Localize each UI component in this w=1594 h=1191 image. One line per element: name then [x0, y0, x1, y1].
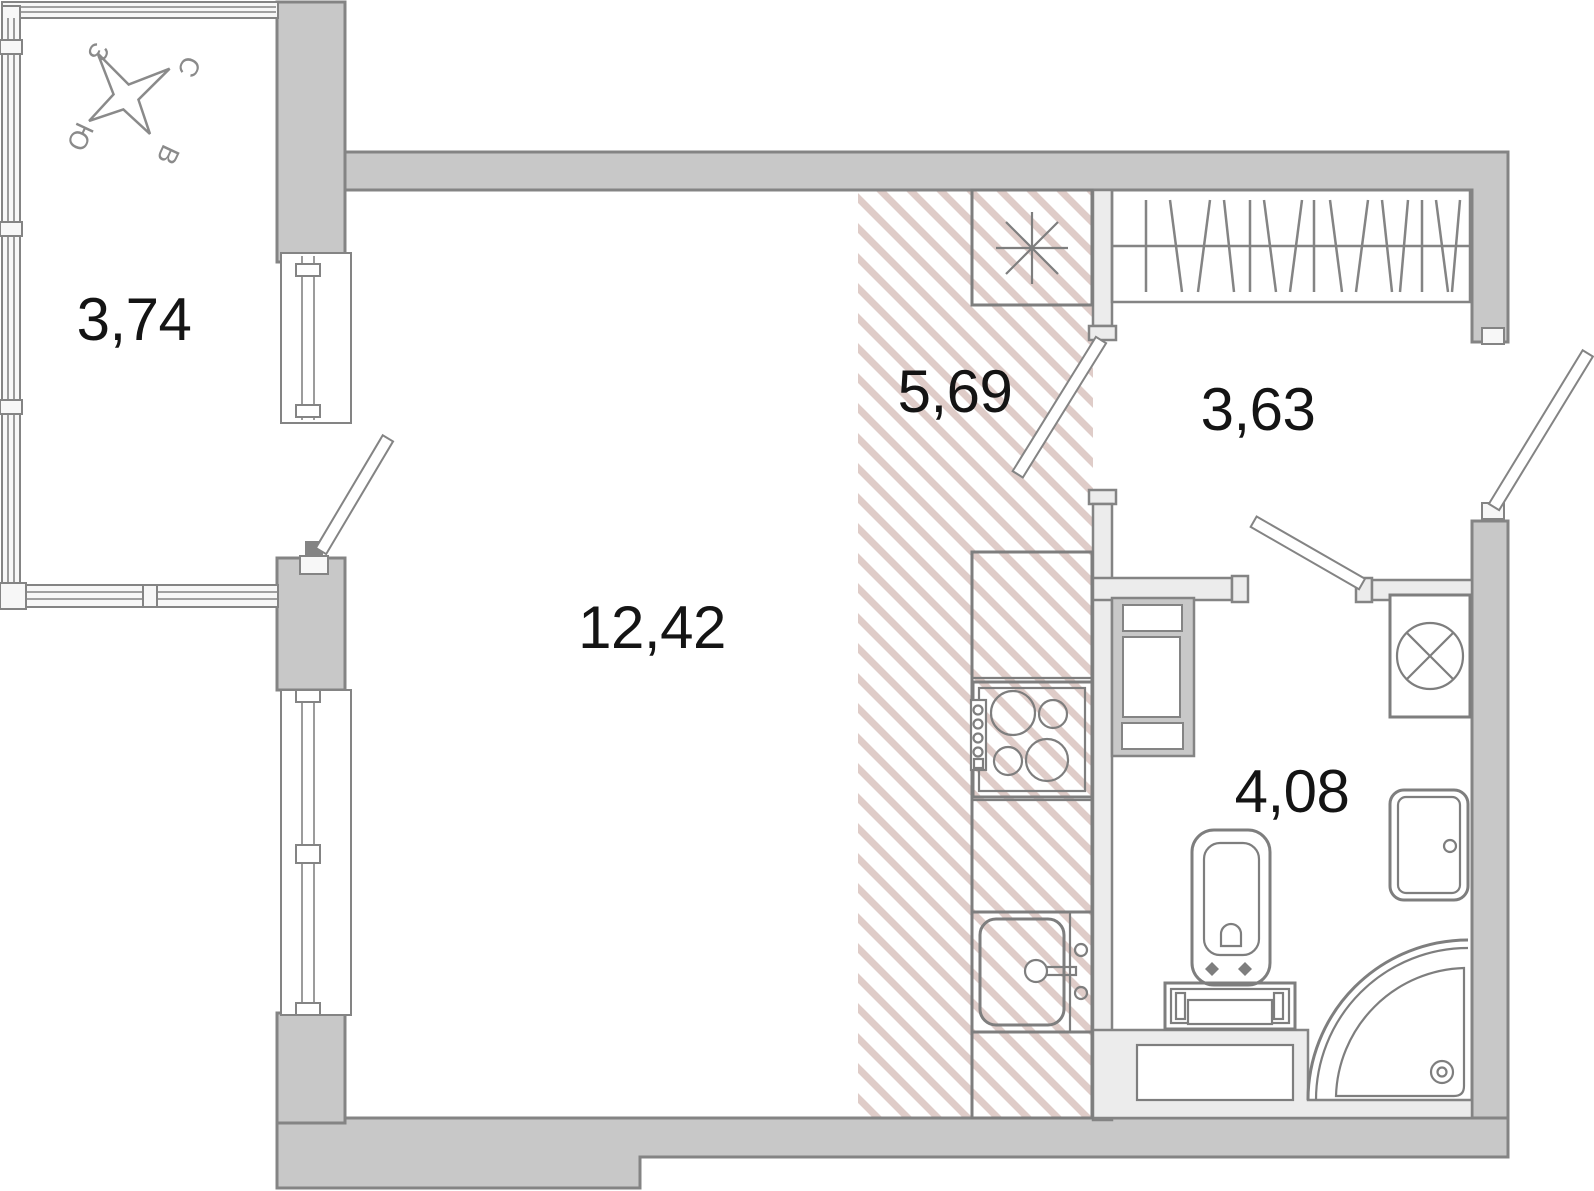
- kitchen-area-label: 5,69: [898, 358, 1013, 425]
- bathroom-sink-icon: [1390, 790, 1468, 900]
- balcony-window: [281, 253, 351, 423]
- living-room-window: [281, 690, 351, 1015]
- bathroom-area-label: 4,08: [1235, 758, 1350, 825]
- living-area-label: 12,42: [578, 594, 726, 661]
- washing-machine-icon: [1390, 595, 1470, 717]
- floor-plan: С З Ю В 3,74 12,42 5,69 3,63 4,08: [0, 0, 1594, 1191]
- kitchen-zone-hatch: [858, 190, 1093, 1118]
- hallway-area-label: 3,63: [1201, 376, 1316, 443]
- balcony-area-label: 3,74: [77, 286, 192, 353]
